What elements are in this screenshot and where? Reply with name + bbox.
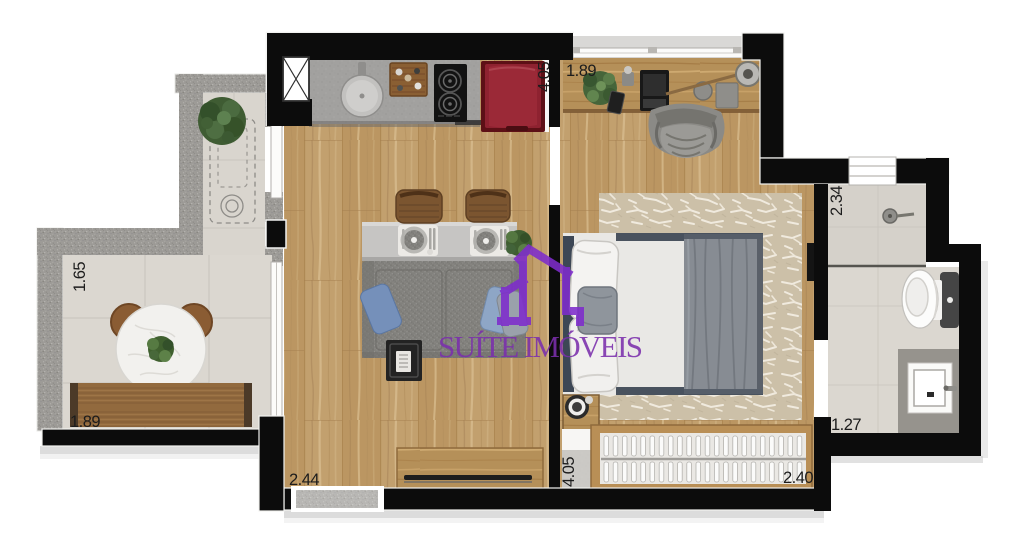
svg-text:1.27: 1.27 [831,416,861,434]
svg-text:2.34: 2.34 [828,186,846,216]
svg-text:1.65: 1.65 [71,262,89,292]
svg-text:1.89: 1.89 [70,413,100,431]
svg-text:2.40: 2.40 [783,469,813,487]
svg-text:4.05: 4.05 [560,457,578,487]
svg-text:1.89: 1.89 [566,62,596,80]
svg-text:SUÍTE IMÓVEIS: SUÍTE IMÓVEIS [438,329,644,364]
